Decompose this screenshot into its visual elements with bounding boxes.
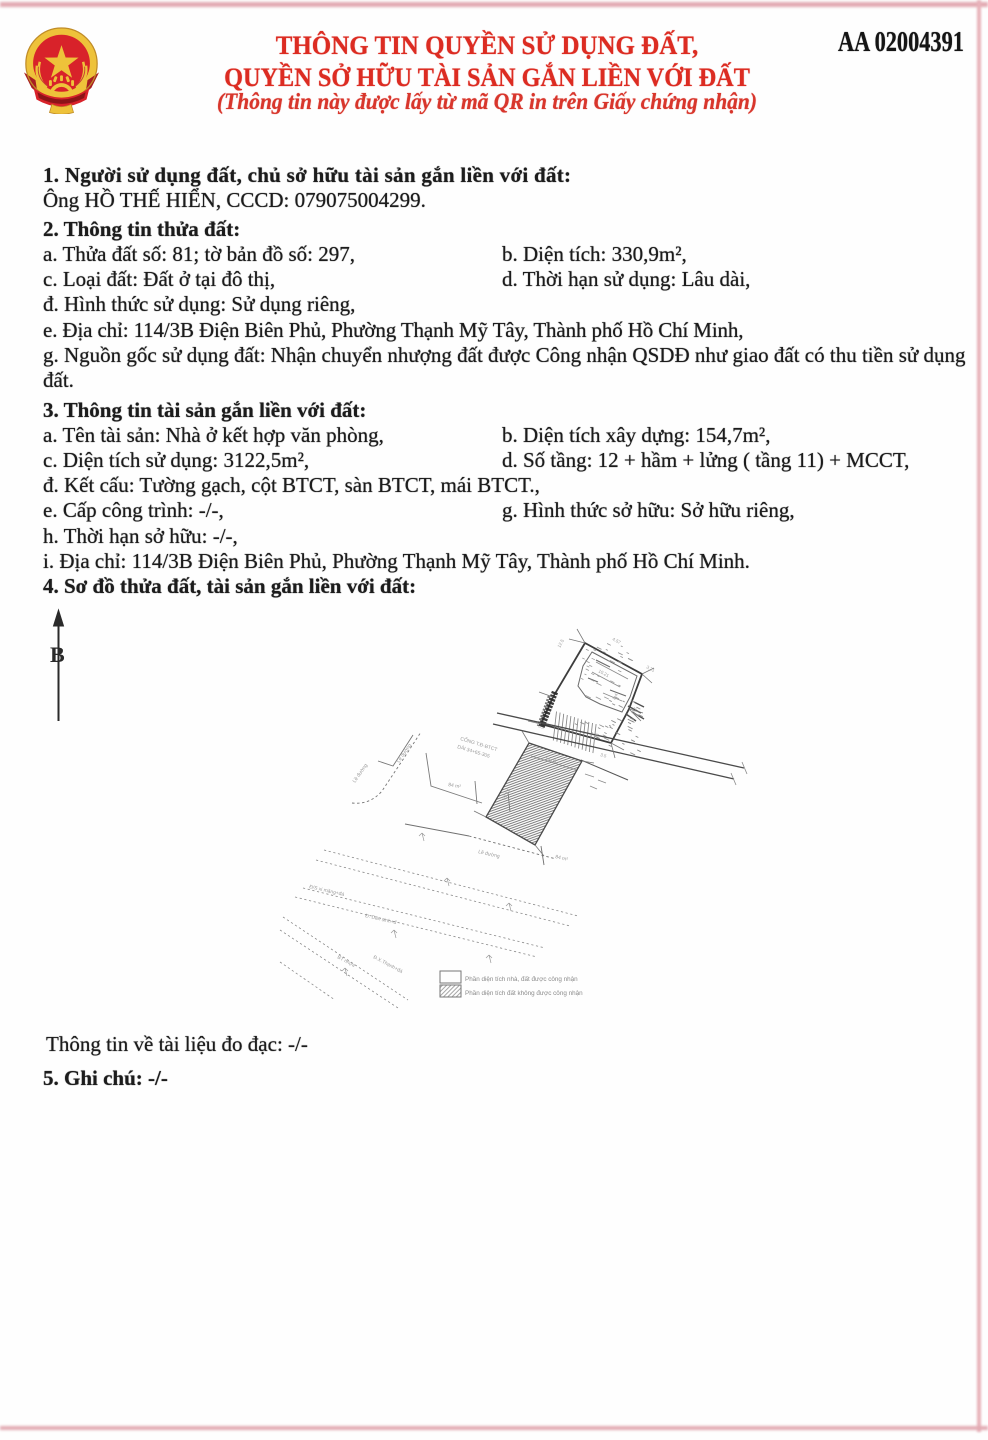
svg-text:Phần diện tích đất không được: Phần diện tích đất không được công nhận (465, 988, 583, 997)
svg-text:Lề đường: Lề đường (352, 763, 370, 785)
svg-text:10.21: 10.21 (598, 668, 611, 678)
svg-text:3.21: 3.21 (646, 664, 657, 673)
svg-text:3.5: 3.5 (600, 752, 608, 759)
svg-text:Lề đường: Lề đường (478, 849, 501, 860)
svg-text:4.57: 4.57 (612, 636, 623, 645)
svg-text:B: B (50, 642, 65, 667)
svg-text:12.5: 12.5 (556, 638, 565, 649)
svg-text:Đ. Dân sinh+đ: Đ. Dân sinh+đ (365, 913, 398, 926)
svg-text:84 m²: 84 m² (555, 854, 569, 863)
svg-text:84 m²: 84 m² (448, 782, 462, 790)
svg-text:Đ.X.Thạnh+đá: Đ.X.Thạnh+đá (372, 954, 404, 975)
svg-text:Phần diện tích nhà, đất được c: Phần diện tích nhà, đất được công nhận (465, 974, 578, 983)
svg-text:Đ/S xi măng+đá: Đ/S xi măng+đá (309, 884, 345, 898)
svg-text:Lề đường: Lề đường (396, 743, 414, 765)
svg-text:BT nhựa: BT nhựa (336, 954, 356, 968)
